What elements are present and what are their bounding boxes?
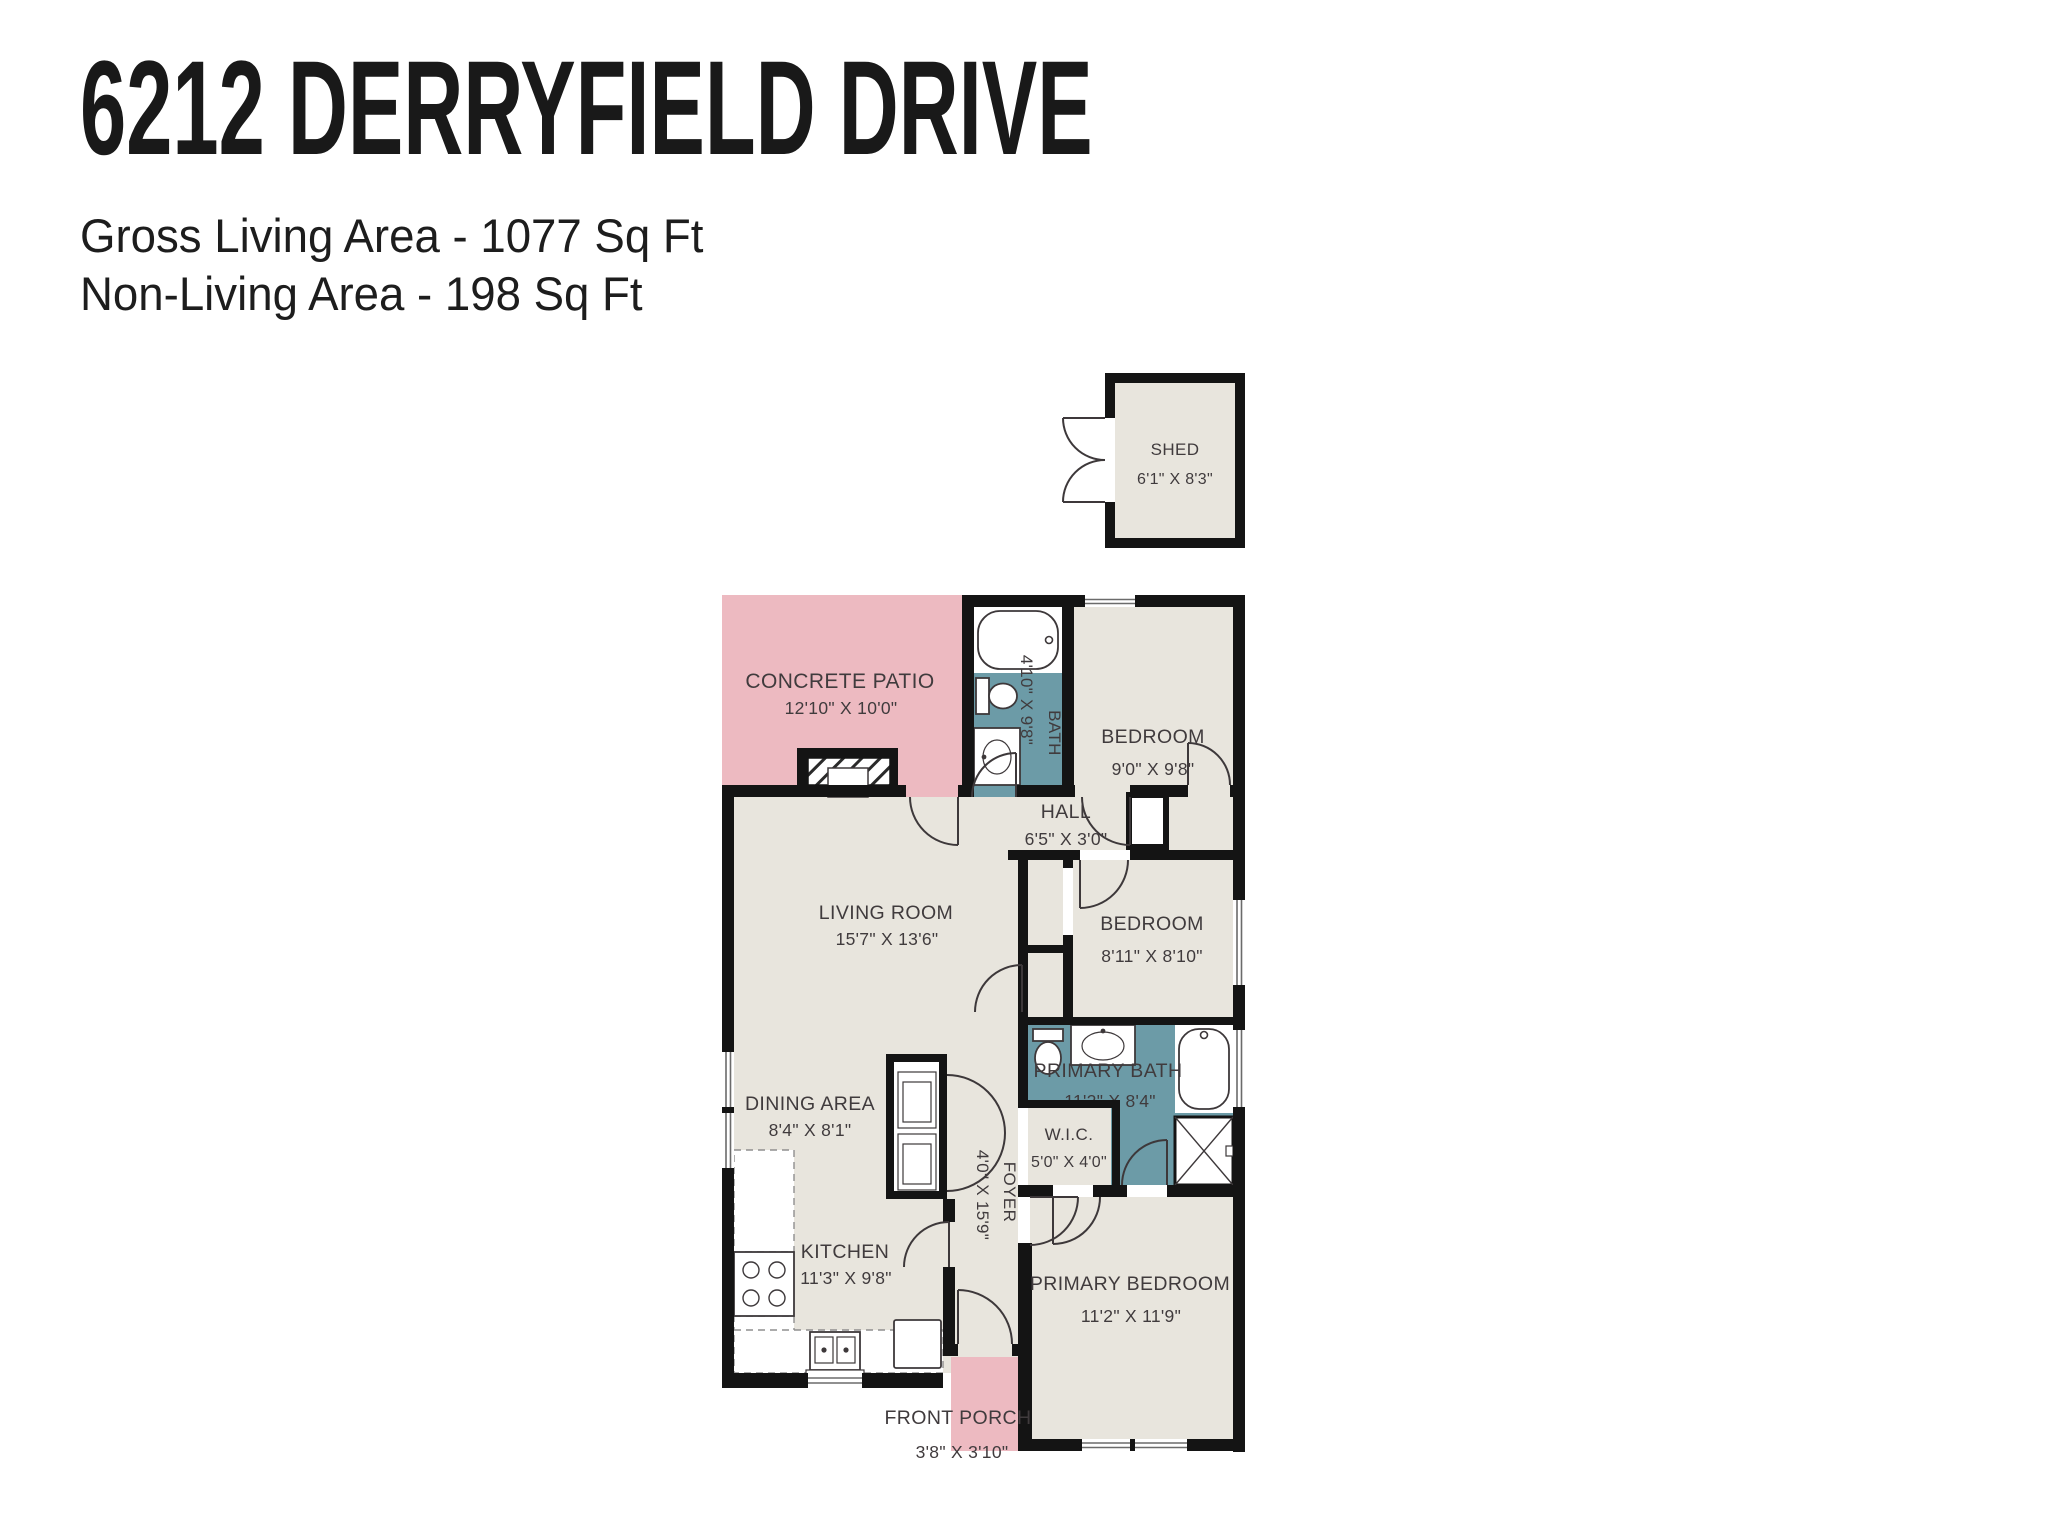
svg-text:11'2" X 11'9": 11'2" X 11'9" <box>1081 1306 1181 1326</box>
svg-text:SHED: SHED <box>1151 440 1200 459</box>
svg-text:6'5" X 3'0": 6'5" X 3'0" <box>1025 829 1108 849</box>
svg-text:4'10" X 9'8": 4'10" X 9'8" <box>1017 655 1036 745</box>
shower-icon <box>1175 1117 1233 1185</box>
svg-text:12'10" X 10'0": 12'10" X 10'0" <box>785 698 898 718</box>
svg-text:3'8" X 3'10": 3'8" X 3'10" <box>916 1442 1009 1462</box>
svg-text:BEDROOM: BEDROOM <box>1100 913 1204 935</box>
bathtub-icon <box>1175 1025 1233 1113</box>
porch-floor <box>951 1357 1020 1451</box>
svg-text:15'7" X 13'6": 15'7" X 13'6" <box>836 929 939 949</box>
svg-text:BEDROOM: BEDROOM <box>1101 726 1205 748</box>
svg-text:8'4" X 8'1": 8'4" X 8'1" <box>769 1120 852 1140</box>
svg-text:PRIMARY BATH: PRIMARY BATH <box>1034 1060 1183 1082</box>
svg-text:HALL: HALL <box>1041 801 1091 823</box>
window <box>1233 1030 1245 1107</box>
wic-floor <box>1028 1108 1111 1185</box>
window <box>808 1373 862 1388</box>
svg-text:W.I.C.: W.I.C. <box>1045 1125 1094 1144</box>
kitchen-sink-icon <box>806 1332 864 1376</box>
svg-text:KITCHEN: KITCHEN <box>801 1241 889 1263</box>
svg-text:PRIMARY BEDROOM: PRIMARY BEDROOM <box>1030 1273 1230 1295</box>
window <box>722 1113 734 1168</box>
svg-text:4'0" X 15'9": 4'0" X 15'9" <box>973 1150 992 1240</box>
svg-text:5'0" X 4'0": 5'0" X 4'0" <box>1031 1154 1107 1171</box>
bedroom2-floor <box>1073 860 1233 1017</box>
svg-text:8'11" X 8'10": 8'11" X 8'10" <box>1101 946 1203 966</box>
shed: SHED 6'1" X 8'3" <box>1063 373 1245 548</box>
svg-text:6'1" X 8'3": 6'1" X 8'3" <box>1137 471 1213 488</box>
svg-text:BATH: BATH <box>1045 710 1064 756</box>
vanity-sink-icon <box>1071 1025 1135 1065</box>
svg-text:FOYER: FOYER <box>1000 1162 1019 1223</box>
fridge-icon <box>894 1320 941 1368</box>
stove-icon <box>734 1252 794 1316</box>
floor-plan: 11'2" X 8'4" <box>0 0 2048 1536</box>
window <box>1233 900 1245 985</box>
window <box>1085 595 1135 607</box>
svg-text:9'0" X 9'8": 9'0" X 9'8" <box>1112 759 1195 779</box>
svg-text:DINING AREA: DINING AREA <box>745 1093 875 1115</box>
room-label-primary-bath: PRIMARY BATH <box>1034 1060 1183 1082</box>
svg-text:11'3" X 9'8": 11'3" X 9'8" <box>800 1268 891 1288</box>
closet-strip-floor <box>1028 860 1063 1017</box>
double-window <box>1082 1439 1187 1451</box>
svg-text:CONCRETE PATIO: CONCRETE PATIO <box>745 670 934 693</box>
shed-double-door-swing <box>1063 418 1105 502</box>
counter-icon <box>734 1150 794 1252</box>
window <box>722 1052 734 1107</box>
svg-text:FRONT PORCH: FRONT PORCH <box>884 1407 1031 1429</box>
svg-text:LIVING ROOM: LIVING ROOM <box>819 902 953 924</box>
